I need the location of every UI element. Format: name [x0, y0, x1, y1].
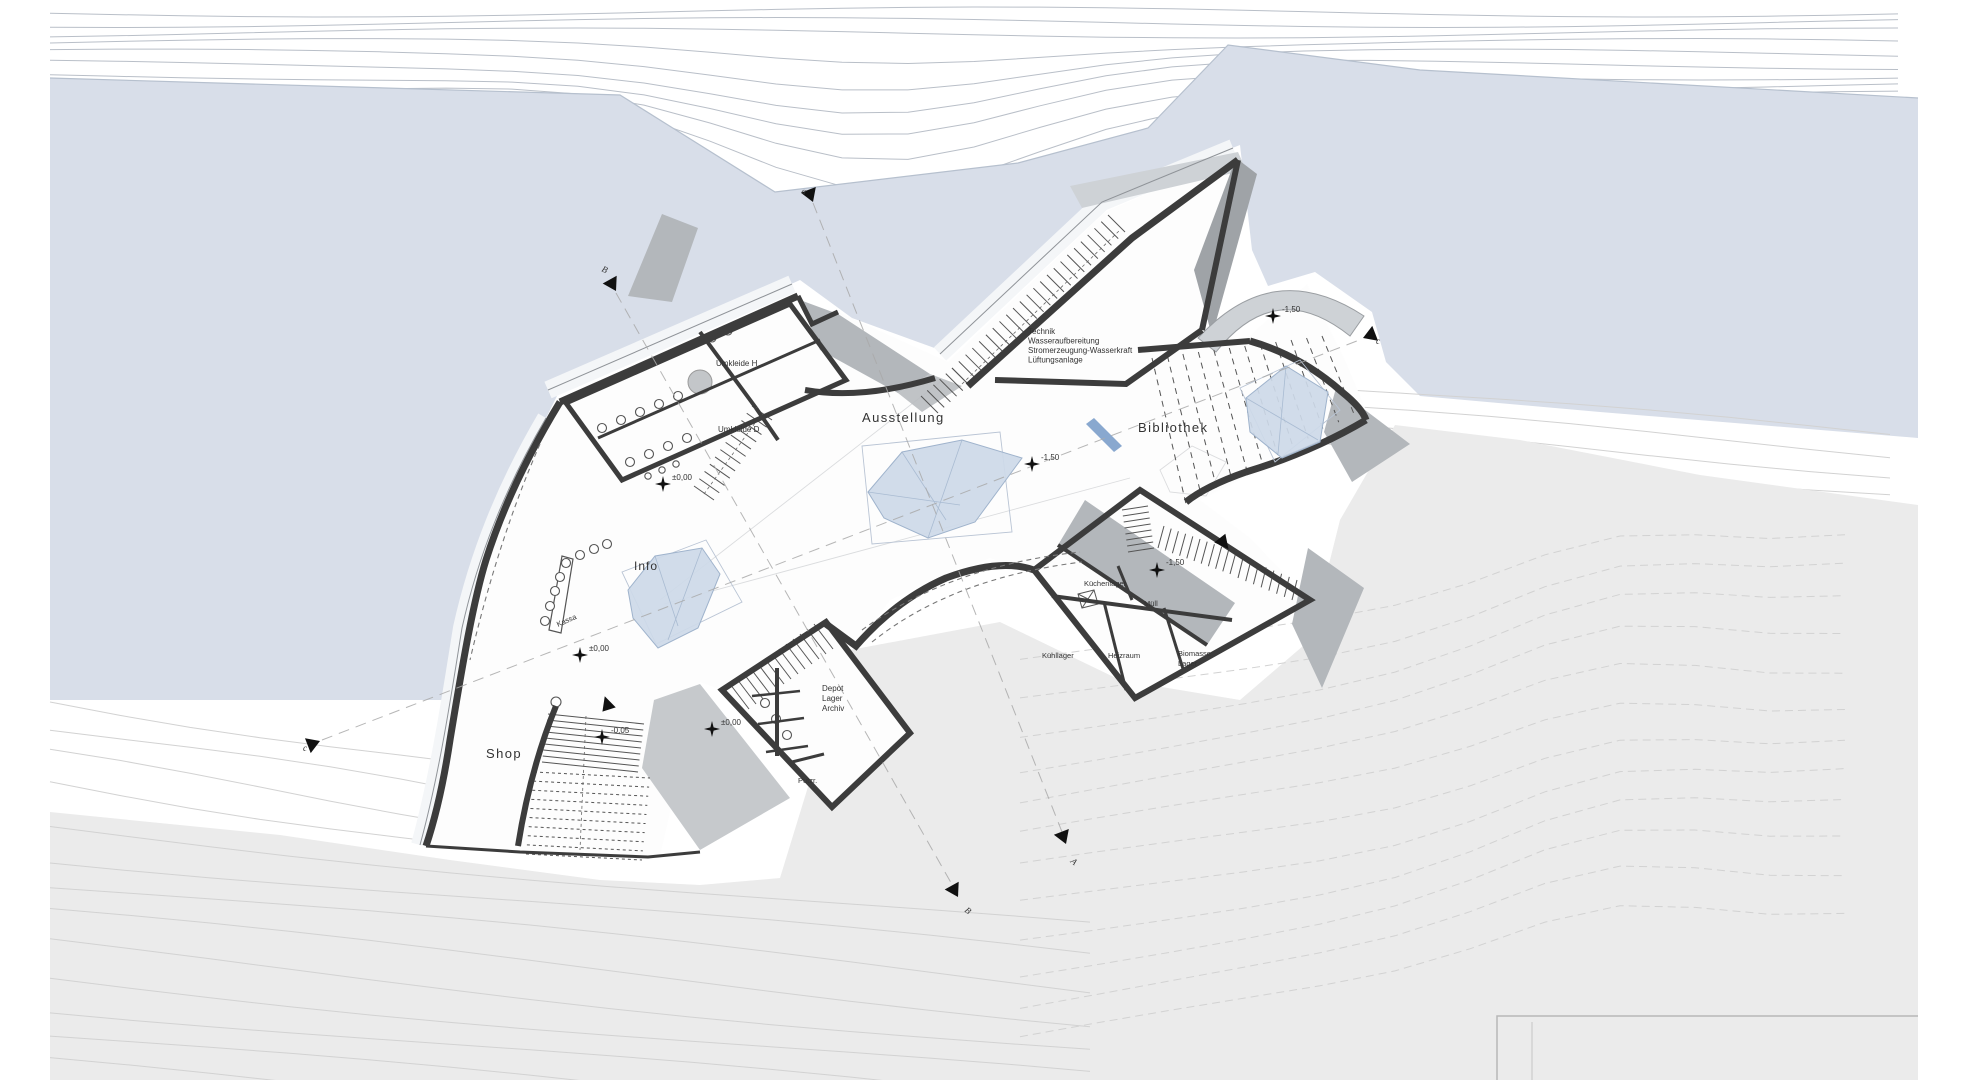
toilet-icon	[636, 408, 645, 417]
section-letter: c	[1376, 336, 1380, 346]
room-label-muell: Müll	[1144, 599, 1158, 608]
room-label-technik-1: Technik	[1028, 327, 1056, 336]
toilet-icon	[617, 416, 626, 425]
floor-plan-drawing: a B B A c c ±0,00 ±0,00 -0,05 ±0,00 -1,5…	[0, 0, 1980, 1080]
sink-icon	[645, 473, 651, 479]
room-label-heizraum: Heizraum	[1108, 651, 1140, 660]
room-label-technik-3: Stromerzeugung-Wasserkraft	[1028, 346, 1133, 355]
room-label-technik-4: Lüftungsanlage	[1028, 356, 1083, 365]
stool-icon	[551, 697, 561, 707]
sink-icon	[673, 461, 679, 467]
stool-icon	[590, 545, 599, 554]
room-label-umkleide-d: Umkleide D	[718, 425, 760, 434]
toilet-icon	[664, 442, 673, 451]
level-value: -1,50	[1282, 305, 1301, 314]
level-value: ±0,00	[721, 718, 742, 727]
toilet-icon	[598, 424, 607, 433]
toilet-icon	[783, 731, 792, 740]
room-label-bibliothek: Bibliothek	[1138, 420, 1208, 435]
toilet-icon	[626, 458, 635, 467]
level-value: -1,50	[1166, 558, 1185, 567]
level-value: ±0,00	[589, 644, 610, 653]
toilet-icon	[655, 400, 664, 409]
room-label-biomasse-2: Lager	[1178, 659, 1198, 668]
toilet-icon	[761, 699, 770, 708]
section-triangle	[305, 734, 323, 754]
stool-icon	[546, 602, 555, 611]
room-label-shop: Shop	[486, 746, 522, 761]
room-label-kuechenlager: Küchenlager	[1084, 579, 1127, 588]
room-label-putzraum: Putzr.	[798, 776, 817, 785]
room-label-info: Info	[634, 559, 658, 573]
level-value: ±0,00	[672, 473, 693, 482]
room-label-biomasse-1: Biomasse	[1178, 649, 1211, 658]
room-label-umkleide-h: Umkleide H	[716, 359, 758, 368]
stool-icon	[576, 551, 585, 560]
toilet-icon	[645, 450, 654, 459]
stool-icon	[556, 573, 565, 582]
room-label-technik-2: Wasseraufbereitung	[1028, 337, 1099, 346]
room-label-ausstellung: Ausstellung	[862, 410, 945, 425]
stool-icon	[551, 587, 560, 596]
sink-icon	[659, 467, 665, 473]
room-label-depot-3: Archiv	[822, 704, 844, 713]
section-letter: c	[303, 743, 307, 753]
level-value: -0,05	[611, 726, 630, 735]
stool-icon	[541, 617, 550, 626]
stool-icon	[562, 559, 571, 568]
room-label-depot-1: Depot	[822, 684, 844, 693]
level-value: -1,50	[1041, 453, 1060, 462]
room-label-kuehllager: Kühllager	[1042, 651, 1074, 660]
room-label-depot-2: Lager	[822, 694, 843, 703]
site-plan-page: a B B A c c ±0,00 ±0,00 -0,05 ±0,00 -1,5…	[0, 0, 1980, 1080]
toilet-icon	[683, 434, 692, 443]
stool-icon	[603, 540, 612, 549]
